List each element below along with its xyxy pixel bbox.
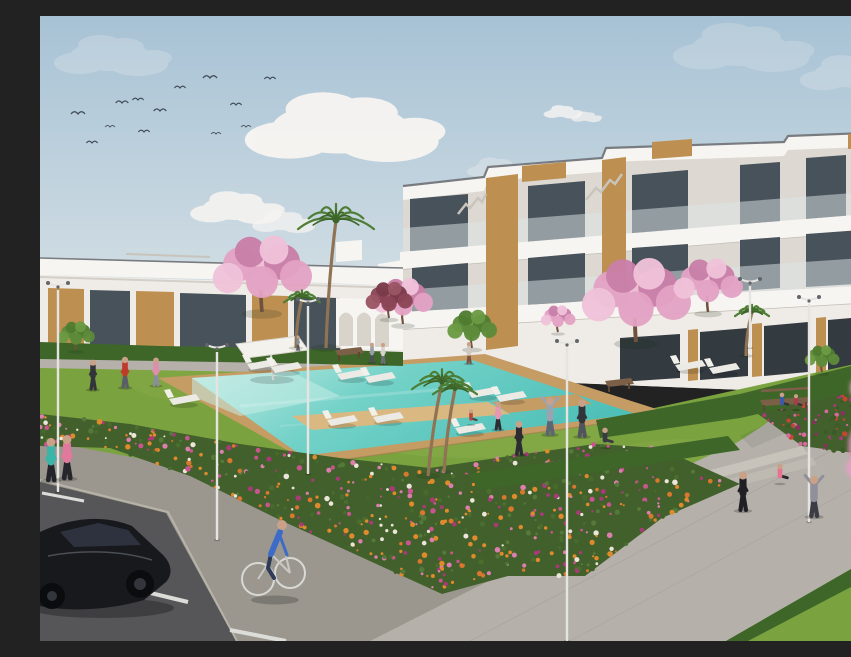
window-glass [180, 293, 246, 351]
car-wheel-hub [134, 578, 146, 590]
arch-niche [357, 313, 371, 347]
cyclist-shadow [251, 596, 299, 605]
rooftop-box [336, 240, 362, 262]
scene-canvas [40, 16, 851, 641]
window-glass [90, 290, 130, 348]
arch-niche [339, 313, 353, 347]
wood-column [752, 323, 762, 377]
car-wheel-hub [47, 591, 57, 601]
architectural-render: Architectural render of a white apartmen… [40, 16, 851, 641]
ground-window [764, 322, 808, 376]
cyclist-head [277, 520, 287, 530]
wood-panel [136, 291, 174, 351]
wood-rooftop-box [652, 139, 692, 159]
